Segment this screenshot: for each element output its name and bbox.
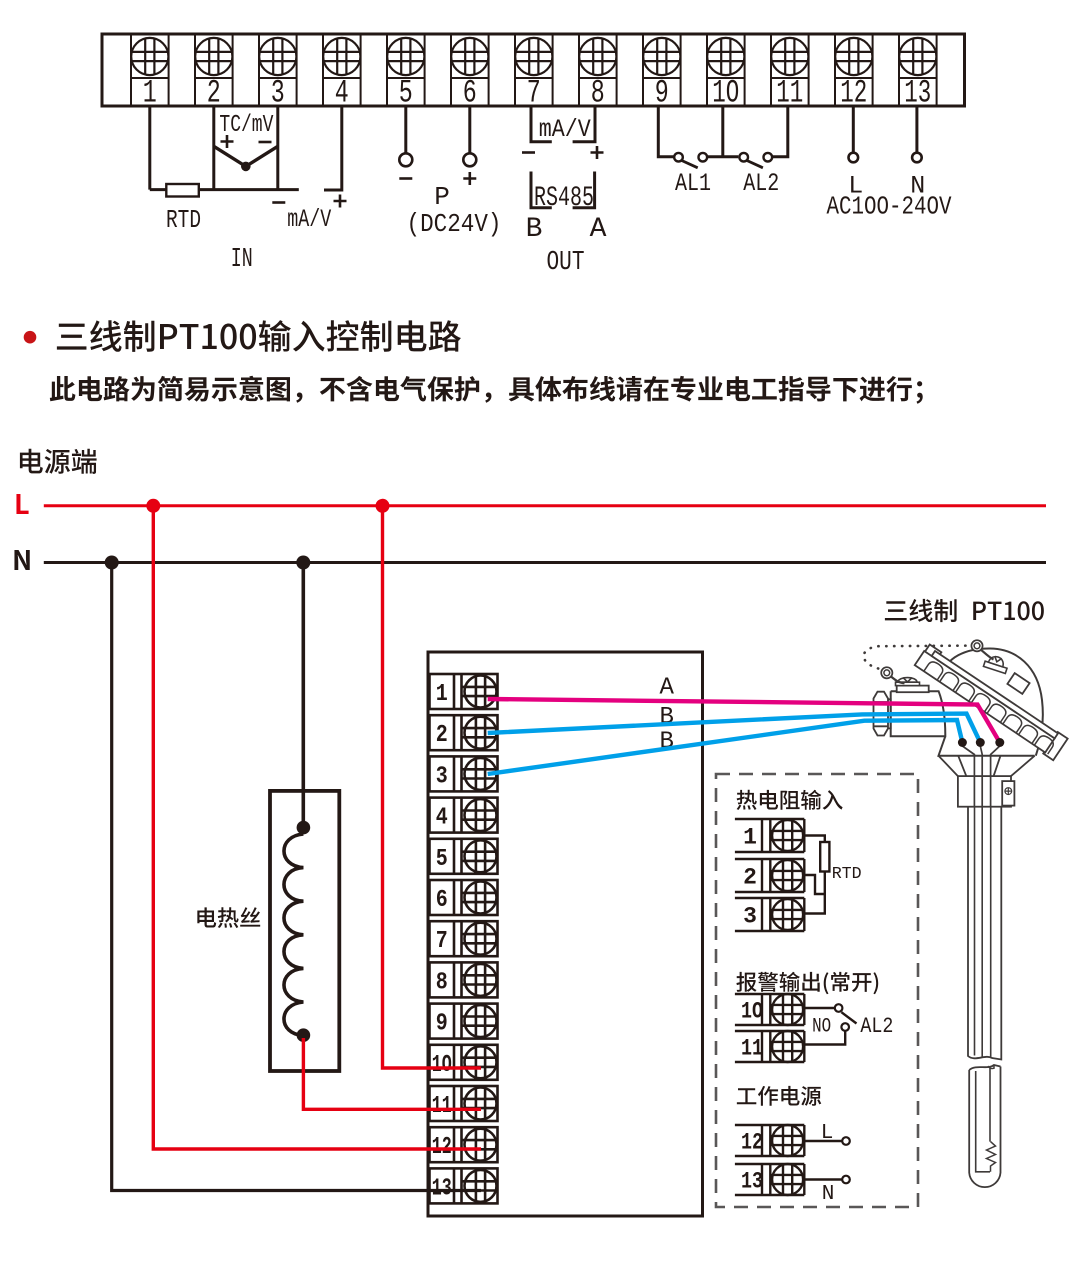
svg-text:13: 13 (904, 75, 931, 112)
svg-text:TC/mV: TC/mV (219, 112, 273, 139)
svg-text:7: 7 (527, 75, 541, 112)
svg-text:AL2: AL2 (860, 1014, 893, 1039)
svg-text:OUT: OUT (547, 248, 585, 278)
svg-text:4: 4 (436, 805, 448, 832)
svg-text:1: 1 (143, 75, 157, 112)
svg-text:8: 8 (591, 75, 605, 112)
svg-text:RTD: RTD (832, 865, 862, 884)
svg-text:P: P (434, 182, 450, 212)
svg-text:7: 7 (436, 928, 448, 955)
svg-text:4: 4 (335, 75, 349, 112)
svg-text:12: 12 (840, 75, 867, 112)
svg-text:11: 11 (776, 75, 803, 112)
svg-text:5: 5 (436, 846, 448, 873)
svg-text:B: B (659, 704, 673, 731)
svg-text:IN: IN (231, 245, 253, 275)
svg-text:3: 3 (271, 75, 285, 112)
svg-text:6: 6 (463, 75, 477, 112)
svg-text:AL2: AL2 (743, 169, 779, 198)
svg-text:A: A (590, 214, 607, 245)
svg-text:AL1: AL1 (675, 169, 711, 198)
svg-text:2: 2 (207, 75, 221, 112)
svg-text:1: 1 (436, 681, 448, 708)
svg-text:3: 3 (436, 763, 448, 790)
svg-text:RTD: RTD (166, 205, 201, 235)
svg-text:A: A (659, 675, 674, 702)
svg-text:mA/V: mA/V (539, 115, 591, 144)
svg-text:13: 13 (741, 1169, 763, 1195)
svg-text:NO: NO (812, 1016, 831, 1039)
svg-text:B: B (526, 214, 543, 245)
svg-text:RS485: RS485 (534, 183, 594, 214)
svg-text:1O: 1O (712, 75, 739, 112)
svg-text:5: 5 (399, 75, 413, 112)
svg-text:2: 2 (743, 865, 757, 891)
svg-text:L: L (821, 1122, 834, 1145)
svg-text:1O: 1O (432, 1052, 452, 1079)
svg-text:3: 3 (743, 904, 757, 930)
svg-text:9: 9 (436, 1011, 448, 1038)
svg-text:1O: 1O (741, 999, 763, 1025)
svg-text:12: 12 (741, 1130, 763, 1156)
svg-text:11: 11 (432, 1093, 452, 1120)
svg-text:2: 2 (436, 722, 448, 749)
svg-text:8: 8 (436, 969, 448, 996)
svg-text:1: 1 (743, 825, 757, 851)
svg-text:N: N (822, 1183, 835, 1206)
svg-text:AC1OO-24OV: AC1OO-24OV (827, 192, 952, 222)
svg-text:6: 6 (436, 887, 448, 914)
svg-text:11: 11 (741, 1036, 763, 1062)
svg-text:mA/V: mA/V (287, 205, 331, 234)
svg-text:9: 9 (655, 75, 669, 112)
svg-text:(DC24V): (DC24V) (407, 209, 502, 239)
